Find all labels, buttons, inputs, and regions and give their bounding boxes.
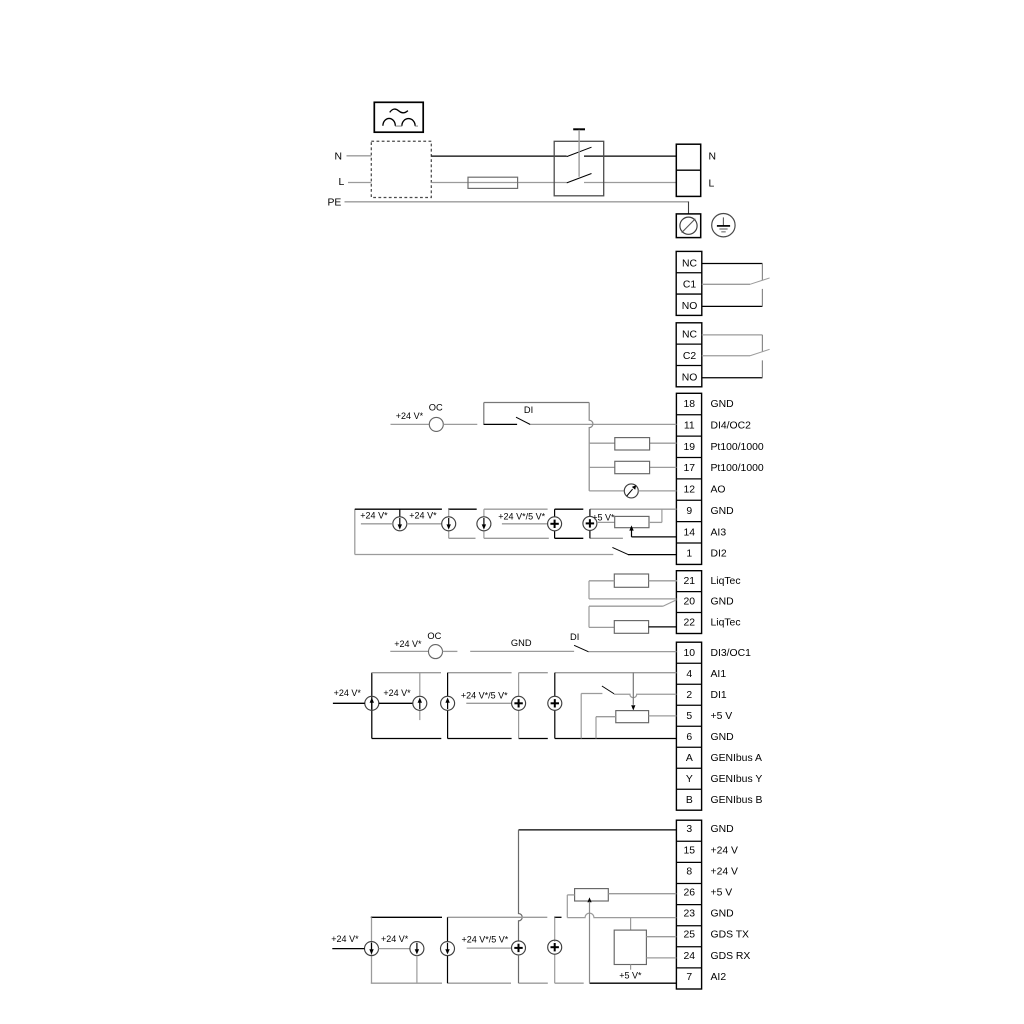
svg-text:AI2: AI2 — [711, 972, 727, 983]
svg-text:GND: GND — [711, 399, 734, 410]
svg-text:N: N — [335, 151, 343, 162]
svg-text:GENIbus B: GENIbus B — [711, 795, 763, 806]
svg-text:8: 8 — [686, 866, 692, 877]
svg-text:NO: NO — [682, 301, 698, 312]
svg-text:4: 4 — [686, 669, 692, 680]
svg-text:LiqTec: LiqTec — [711, 576, 741, 587]
svg-text:A: A — [686, 753, 693, 764]
svg-text:GND: GND — [711, 597, 734, 608]
svg-text:+24 V*: +24 V* — [396, 411, 424, 421]
svg-text:+24 V*: +24 V* — [409, 511, 437, 521]
svg-text:2: 2 — [686, 690, 692, 701]
svg-text:+24 V: +24 V — [711, 866, 739, 877]
svg-text:B: B — [686, 795, 693, 806]
svg-text:GND: GND — [711, 824, 734, 835]
svg-text:C1: C1 — [683, 280, 697, 291]
svg-text:7: 7 — [686, 972, 692, 983]
svg-text:11: 11 — [684, 420, 695, 431]
svg-text:3: 3 — [686, 824, 692, 835]
svg-text:GENIbus A: GENIbus A — [711, 753, 762, 764]
svg-text:GDS RX: GDS RX — [711, 951, 751, 962]
svg-text:10: 10 — [684, 648, 696, 659]
svg-text:GENIbus Y: GENIbus Y — [711, 774, 763, 785]
svg-text:PE: PE — [328, 197, 342, 208]
svg-text:+5 V*: +5 V* — [592, 512, 615, 522]
svg-text:+5 V: +5 V — [711, 711, 733, 722]
svg-text:12: 12 — [684, 485, 696, 496]
svg-text:6: 6 — [686, 732, 692, 743]
svg-text:21: 21 — [684, 576, 696, 587]
svg-text:DI4/OC2: DI4/OC2 — [711, 420, 752, 431]
svg-text:AI3: AI3 — [711, 527, 727, 538]
svg-text:+24 V*: +24 V* — [334, 688, 362, 698]
svg-text:15: 15 — [684, 845, 696, 856]
svg-text:19: 19 — [684, 442, 696, 453]
svg-text:GND: GND — [711, 909, 734, 920]
svg-text:+24 V*: +24 V* — [360, 511, 388, 521]
svg-text:OC: OC — [429, 403, 443, 413]
svg-text:DI: DI — [570, 632, 579, 642]
svg-text:14: 14 — [684, 527, 696, 538]
svg-text:AI1: AI1 — [711, 669, 727, 680]
svg-text:N: N — [709, 152, 717, 163]
svg-text:GND: GND — [711, 506, 734, 517]
svg-text:Pt100/1000: Pt100/1000 — [711, 442, 764, 453]
svg-text:GND: GND — [711, 732, 734, 743]
svg-text:DI1: DI1 — [711, 690, 727, 701]
svg-text:L: L — [339, 177, 345, 188]
svg-text:+24 V: +24 V — [711, 845, 739, 856]
svg-text:NC: NC — [682, 330, 698, 341]
svg-text:NC: NC — [682, 258, 698, 269]
svg-text:DI3/OC1: DI3/OC1 — [711, 648, 752, 659]
svg-text:Pt100/1000: Pt100/1000 — [711, 463, 764, 474]
svg-text:+24 V*: +24 V* — [331, 934, 359, 944]
svg-text:18: 18 — [684, 399, 696, 410]
svg-text:22: 22 — [684, 618, 696, 629]
svg-text:+24 V*: +24 V* — [394, 639, 422, 649]
svg-text:5: 5 — [686, 711, 692, 722]
svg-text:24: 24 — [684, 951, 696, 962]
svg-text:+24 V*: +24 V* — [383, 688, 411, 698]
svg-text:OC: OC — [427, 631, 441, 641]
svg-text:DI: DI — [524, 405, 533, 415]
svg-text:20: 20 — [684, 597, 696, 608]
svg-text:GND: GND — [511, 638, 532, 648]
svg-text:26: 26 — [684, 887, 696, 898]
svg-text:Y: Y — [686, 774, 693, 785]
svg-text:+24 V*/5 V*: +24 V*/5 V* — [462, 935, 509, 945]
svg-text:GDS TX: GDS TX — [711, 930, 750, 941]
svg-text:DI2: DI2 — [711, 549, 727, 560]
svg-text:25: 25 — [684, 930, 696, 941]
svg-text:23: 23 — [684, 909, 696, 920]
svg-text:+24 V*/5 V*: +24 V*/5 V* — [461, 690, 508, 700]
svg-text:+24 V*/5 V*: +24 V*/5 V* — [498, 511, 545, 521]
svg-text:9: 9 — [686, 506, 692, 517]
svg-text:NO: NO — [682, 372, 698, 383]
svg-text:17: 17 — [684, 463, 696, 474]
svg-text:AO: AO — [711, 485, 726, 496]
svg-text:LiqTec: LiqTec — [711, 618, 741, 629]
svg-text:1: 1 — [686, 549, 692, 560]
svg-text:+5 V: +5 V — [711, 887, 733, 898]
svg-text:C2: C2 — [683, 351, 697, 362]
svg-text:L: L — [709, 178, 715, 189]
svg-text:+5 V*: +5 V* — [619, 971, 642, 981]
svg-text:+24 V*: +24 V* — [381, 934, 409, 944]
